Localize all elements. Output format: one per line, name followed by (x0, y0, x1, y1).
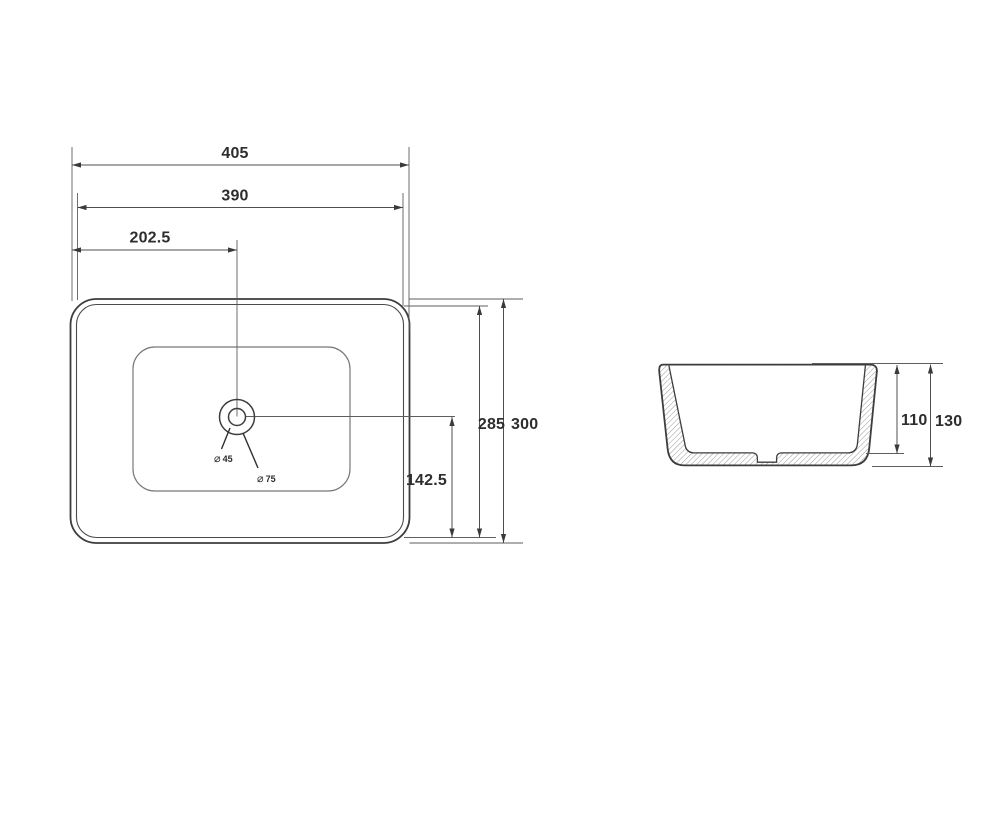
basin-bowl-outline (133, 347, 350, 491)
dim-label-drain-offset-y: 142.5 (406, 472, 447, 489)
basin-technical-drawing: ⌀45 ⌀75 405 390 202.5 142.5 285 300 (0, 0, 1000, 833)
dim-label-inner-depth: 285 (478, 416, 505, 433)
top-view: ⌀45 ⌀75 (71, 240, 456, 543)
drain-leader-large (243, 433, 258, 468)
label-drain-large-diameter: ⌀75 (257, 473, 276, 485)
dim-label-overall-depth: 300 (511, 416, 538, 433)
section-cavity (669, 366, 866, 463)
technical-drawing-page: ⌀45 ⌀75 405 390 202.5 142.5 285 300 (0, 0, 1000, 833)
dim-label-inner-width: 390 (221, 188, 248, 205)
top-view-dimensions: 405 390 202.5 142.5 285 300 (72, 145, 538, 543)
diameter-symbol: ⌀ (257, 473, 264, 485)
dim-label-overall-height: 130 (935, 413, 962, 430)
basin-rim-inner-line (77, 305, 404, 538)
dim-label-overall-width: 405 (221, 145, 248, 162)
basin-outer-outline (71, 299, 410, 543)
dim-label-drain-offset-x: 202.5 (129, 230, 170, 247)
side-view-section (659, 365, 877, 466)
dim-label-inner-height: 110 (901, 412, 927, 429)
label-drain-small-diameter: ⌀45 (214, 453, 233, 465)
diameter-symbol: ⌀ (214, 453, 221, 465)
